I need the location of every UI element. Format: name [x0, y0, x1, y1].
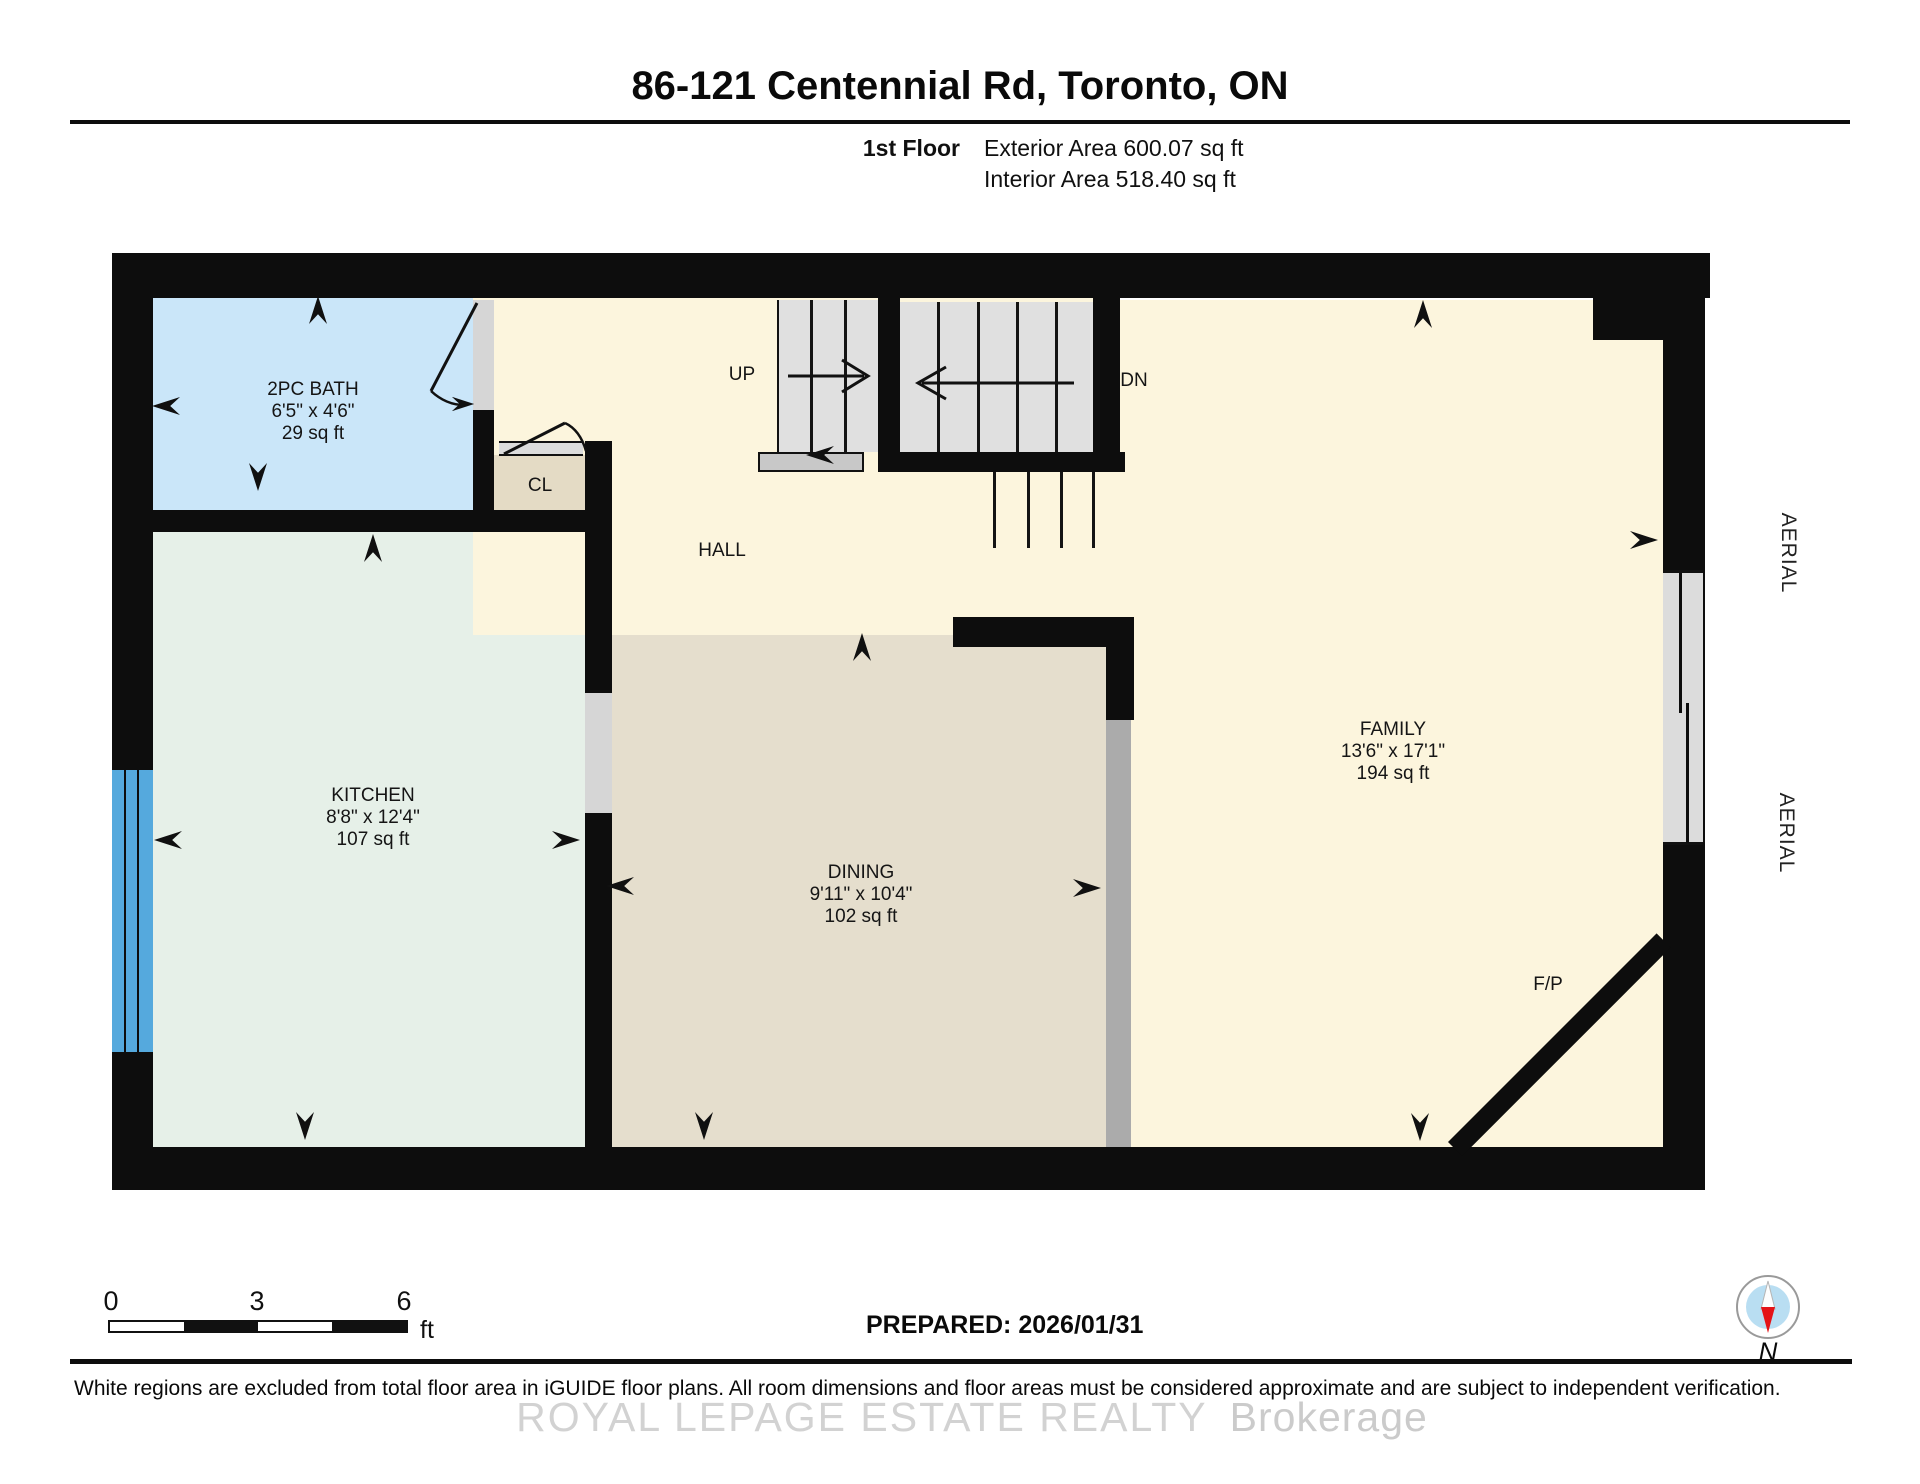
aerial-label-lower: AERIAL — [1774, 793, 1798, 874]
room-name: FAMILY — [1341, 719, 1445, 741]
scale-segment — [258, 1322, 332, 1331]
room-dimensions: 6'5" x 4'6" — [267, 401, 359, 423]
closet-door-swing-arc — [565, 423, 586, 451]
scale-tick-3: 3 — [249, 1286, 264, 1317]
family-label: FAMILY 13'6" x 17'1" 194 sq ft — [1341, 719, 1445, 785]
hall-label: HALL — [698, 540, 746, 562]
scale-bar — [108, 1320, 408, 1333]
dining-label: DINING 9'11" x 10'4" 102 sq ft — [810, 862, 913, 928]
aerial-label-upper: AERIAL — [1776, 513, 1800, 594]
closet-door-leaf — [504, 423, 565, 454]
floor-plan-page: 86-121 Centennial Rd, Toronto, ON 1st Fl… — [0, 0, 1920, 1484]
bath-door-leaf — [431, 303, 477, 391]
room-dimensions: 8'8" x 12'4" — [326, 807, 420, 829]
scale-segment — [184, 1322, 258, 1331]
prepared-date: PREPARED: 2026/01/31 — [866, 1311, 1143, 1340]
room-area: 107 sq ft — [326, 829, 420, 851]
brokerage-watermark: ROYAL LEPAGE ESTATE REALTYBrokerage — [0, 1394, 1920, 1441]
watermark-secondary: Brokerage — [1230, 1394, 1428, 1440]
bath-label: 2PC BATH 6'5" x 4'6" 29 sq ft — [267, 379, 359, 445]
compass-icon — [1734, 1273, 1802, 1341]
room-name: KITCHEN — [326, 785, 420, 807]
room-name: 2PC BATH — [267, 379, 359, 401]
closet-label: CL — [528, 475, 552, 497]
footer-divider — [70, 1359, 1852, 1364]
room-area: 194 sq ft — [1341, 763, 1445, 785]
scale-segment — [332, 1322, 406, 1331]
room-area: 102 sq ft — [810, 906, 913, 928]
stairs-down-label: DN — [1120, 370, 1147, 392]
stairs-down-arrow — [918, 367, 1074, 399]
stairs-up-arrow — [788, 360, 868, 392]
room-name: DINING — [810, 862, 913, 884]
stairs-up-label: UP — [729, 364, 755, 386]
scale-tick-0: 0 — [103, 1286, 118, 1317]
scale-unit: ft — [420, 1316, 434, 1345]
kitchen-label: KITCHEN 8'8" x 12'4" 107 sq ft — [326, 785, 420, 851]
room-dimensions: 9'11" x 10'4" — [810, 884, 913, 906]
fireplace-label: F/P — [1533, 974, 1563, 996]
room-dimensions: 13'6" x 17'1" — [1341, 741, 1445, 763]
scale-segment — [110, 1322, 184, 1331]
watermark-primary: ROYAL LEPAGE ESTATE REALTY — [516, 1394, 1207, 1440]
scale-tick-6: 6 — [396, 1286, 411, 1317]
plan-linework — [0, 0, 1920, 1484]
room-area: 29 sq ft — [267, 423, 359, 445]
